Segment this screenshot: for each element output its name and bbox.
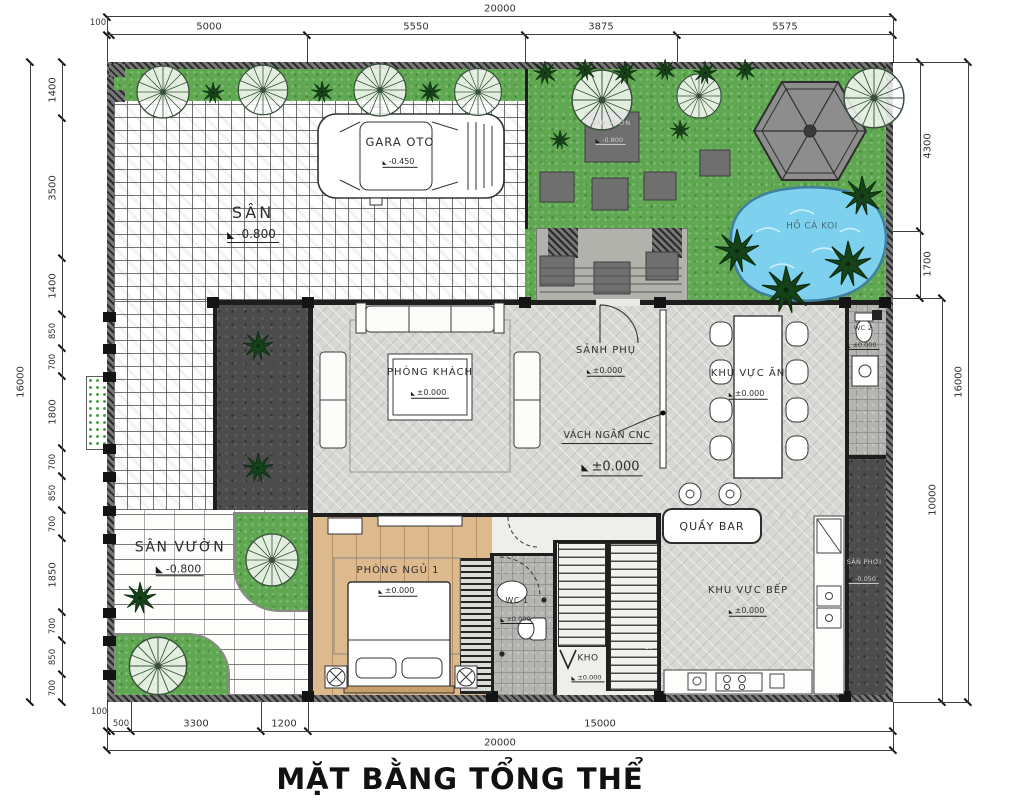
room-label-sanh-phu: SẢNH PHỤ ±0.000 — [576, 345, 636, 378]
entry-planter-right — [652, 228, 682, 258]
dim-line — [107, 34, 893, 35]
room-label-garden-pad: SÂN VƯỜN -0.800 — [592, 119, 631, 147]
column — [839, 297, 851, 308]
ext-line — [893, 702, 894, 750]
dim-bottom-4: 15000 — [584, 719, 616, 730]
room-label-phong-khach: PHÒNG KHÁCH ±0.000 — [387, 367, 473, 400]
ext-line — [886, 298, 942, 299]
room-label-wc1: WC 1 ±0.000 — [500, 596, 533, 626]
dim-left-0: 1400 — [48, 77, 59, 102]
column — [103, 372, 116, 382]
dim-right-total: 16000 — [954, 366, 965, 398]
ext-line — [893, 702, 968, 703]
dim-top-4: 5575 — [772, 22, 797, 33]
column — [654, 297, 666, 308]
column — [302, 297, 314, 308]
dim-bottom-3: 1200 — [271, 719, 296, 730]
dim-line — [920, 62, 921, 298]
yard-left-strip — [114, 300, 213, 510]
stair-flight-left — [558, 543, 606, 647]
dim-line — [30, 62, 31, 702]
wall-bedroom-stair — [553, 540, 557, 695]
room-label-phong-ngu1: PHÒNG NGỦ 1 ±0.000 — [357, 565, 440, 598]
stair-step-count: 10 — [645, 643, 653, 651]
ext-line — [107, 16, 108, 62]
ext-line — [677, 34, 678, 62]
dim-bottom-total: 20000 — [484, 738, 516, 749]
dim-top-3: 3875 — [588, 22, 613, 33]
dim-line — [62, 62, 63, 702]
living-floor — [308, 305, 845, 515]
dim-line — [942, 298, 943, 702]
dim-left-total: 16000 — [16, 366, 27, 398]
wall-wc1-top — [490, 553, 556, 556]
wall-garden-fence — [525, 69, 528, 229]
dim-line — [107, 750, 893, 751]
wall-house-left — [308, 300, 313, 695]
floor-plan-page: { "title": "MẶT BẰNG TỔNG THỂ", "dims": … — [0, 0, 1024, 812]
ext-line — [307, 34, 308, 62]
column — [519, 297, 531, 308]
column — [654, 691, 666, 702]
gate-pillar-2 — [109, 90, 125, 102]
veranda-floor — [213, 305, 308, 510]
dim-left-8: 700 — [48, 516, 58, 532]
dim-left-6: 700 — [48, 454, 58, 470]
fence-right — [886, 62, 893, 702]
dim-top-1: 5000 — [196, 22, 221, 33]
garden-patch-2 — [114, 633, 230, 699]
column — [207, 297, 219, 308]
fence-top — [107, 62, 893, 69]
dim-line — [968, 62, 969, 702]
drawing-title: MẶT BẰNG TỔNG THỂ — [276, 762, 643, 796]
wall-veranda-edge — [213, 300, 217, 510]
dim-left-3: 850 — [48, 323, 58, 339]
ext-line — [131, 702, 132, 731]
column — [103, 344, 116, 354]
room-label-quay-bar: QUẦY BAR — [679, 520, 744, 533]
column — [103, 636, 116, 646]
dim-right-0: 4300 — [923, 133, 934, 158]
ext-line — [525, 34, 526, 62]
column — [103, 312, 116, 322]
room-label-san-vuon: SÂN VƯỜN -0.800 — [135, 539, 226, 577]
fence-bottom — [107, 695, 893, 702]
ext-line — [308, 702, 309, 731]
room-label-khu-vuc-bep: KHU VỰC BẾP ±0.000 — [708, 585, 788, 618]
front-green-strip — [114, 69, 525, 101]
column — [302, 691, 314, 702]
column — [103, 608, 116, 618]
room-label-san-phoi: SÂN PHƠI -0.050 — [847, 558, 882, 586]
dim-left-1: 3500 — [48, 175, 59, 200]
dim-line — [107, 16, 893, 17]
garden-patch-1 — [233, 512, 312, 612]
column — [103, 444, 116, 454]
yard-paving — [114, 101, 525, 300]
dim-bottom-1: 500 — [113, 719, 129, 729]
room-label-san: SÂN -0.800 — [227, 203, 279, 243]
room-label-koi: HỒ CÁ KOI — [786, 221, 838, 232]
dim-left-4: 700 — [48, 354, 58, 370]
dim-top-total: 20000 — [484, 4, 516, 15]
ext-line — [893, 62, 968, 63]
dim-line — [107, 731, 893, 732]
dim-top-2: 5550 — [403, 22, 428, 33]
ext-line — [261, 702, 262, 731]
column — [839, 691, 851, 702]
room-label-gara: GARA OTO -0.450 — [366, 135, 435, 169]
column — [103, 506, 116, 516]
wall-dining-right — [845, 300, 849, 695]
column — [103, 534, 116, 544]
dim-left-5: 1800 — [48, 399, 59, 424]
dim-right-1: 1700 — [923, 251, 934, 276]
dim-bottom-0: 100 — [91, 707, 107, 717]
ext-line — [107, 702, 108, 750]
ext-line — [893, 16, 894, 62]
dim-left-11: 850 — [48, 649, 58, 665]
entry-planter-left — [548, 228, 578, 258]
dim-bottom-2: 3300 — [183, 719, 208, 730]
room-label-wc2: WC 2 ±0.000 — [846, 324, 879, 352]
dim-top-0: 100 — [90, 18, 106, 28]
wall-wc2-corridor — [845, 455, 886, 459]
label-hall-elevation: ±0.000 — [581, 455, 642, 476]
column — [103, 472, 116, 482]
gate-pillar-1 — [109, 64, 125, 77]
wardrobe — [460, 558, 492, 694]
wall-bedroom-front — [308, 513, 660, 517]
bar-counter: QUẦY BAR — [662, 508, 762, 544]
column — [103, 670, 116, 680]
room-label-khu-vuc-an: KHU VỰC ĂN ±0.000 — [711, 368, 785, 401]
dim-left-2: 1400 — [48, 273, 59, 298]
column — [879, 297, 891, 308]
dim-left-10: 700 — [48, 618, 58, 634]
stair-divider — [606, 543, 610, 691]
dim-left-7: 850 — [48, 485, 58, 501]
fence-left — [107, 62, 114, 702]
dim-left-9: 1850 — [48, 562, 59, 587]
room-label-kho: KHO ±0.000 — [571, 653, 604, 684]
label-vach-ngan-cnc: VÁCH NGĂN CNC — [562, 430, 653, 444]
dim-left-12: 700 — [48, 680, 58, 696]
dim-right-inner: 10000 — [928, 484, 939, 516]
stair-flight-right — [610, 543, 658, 691]
